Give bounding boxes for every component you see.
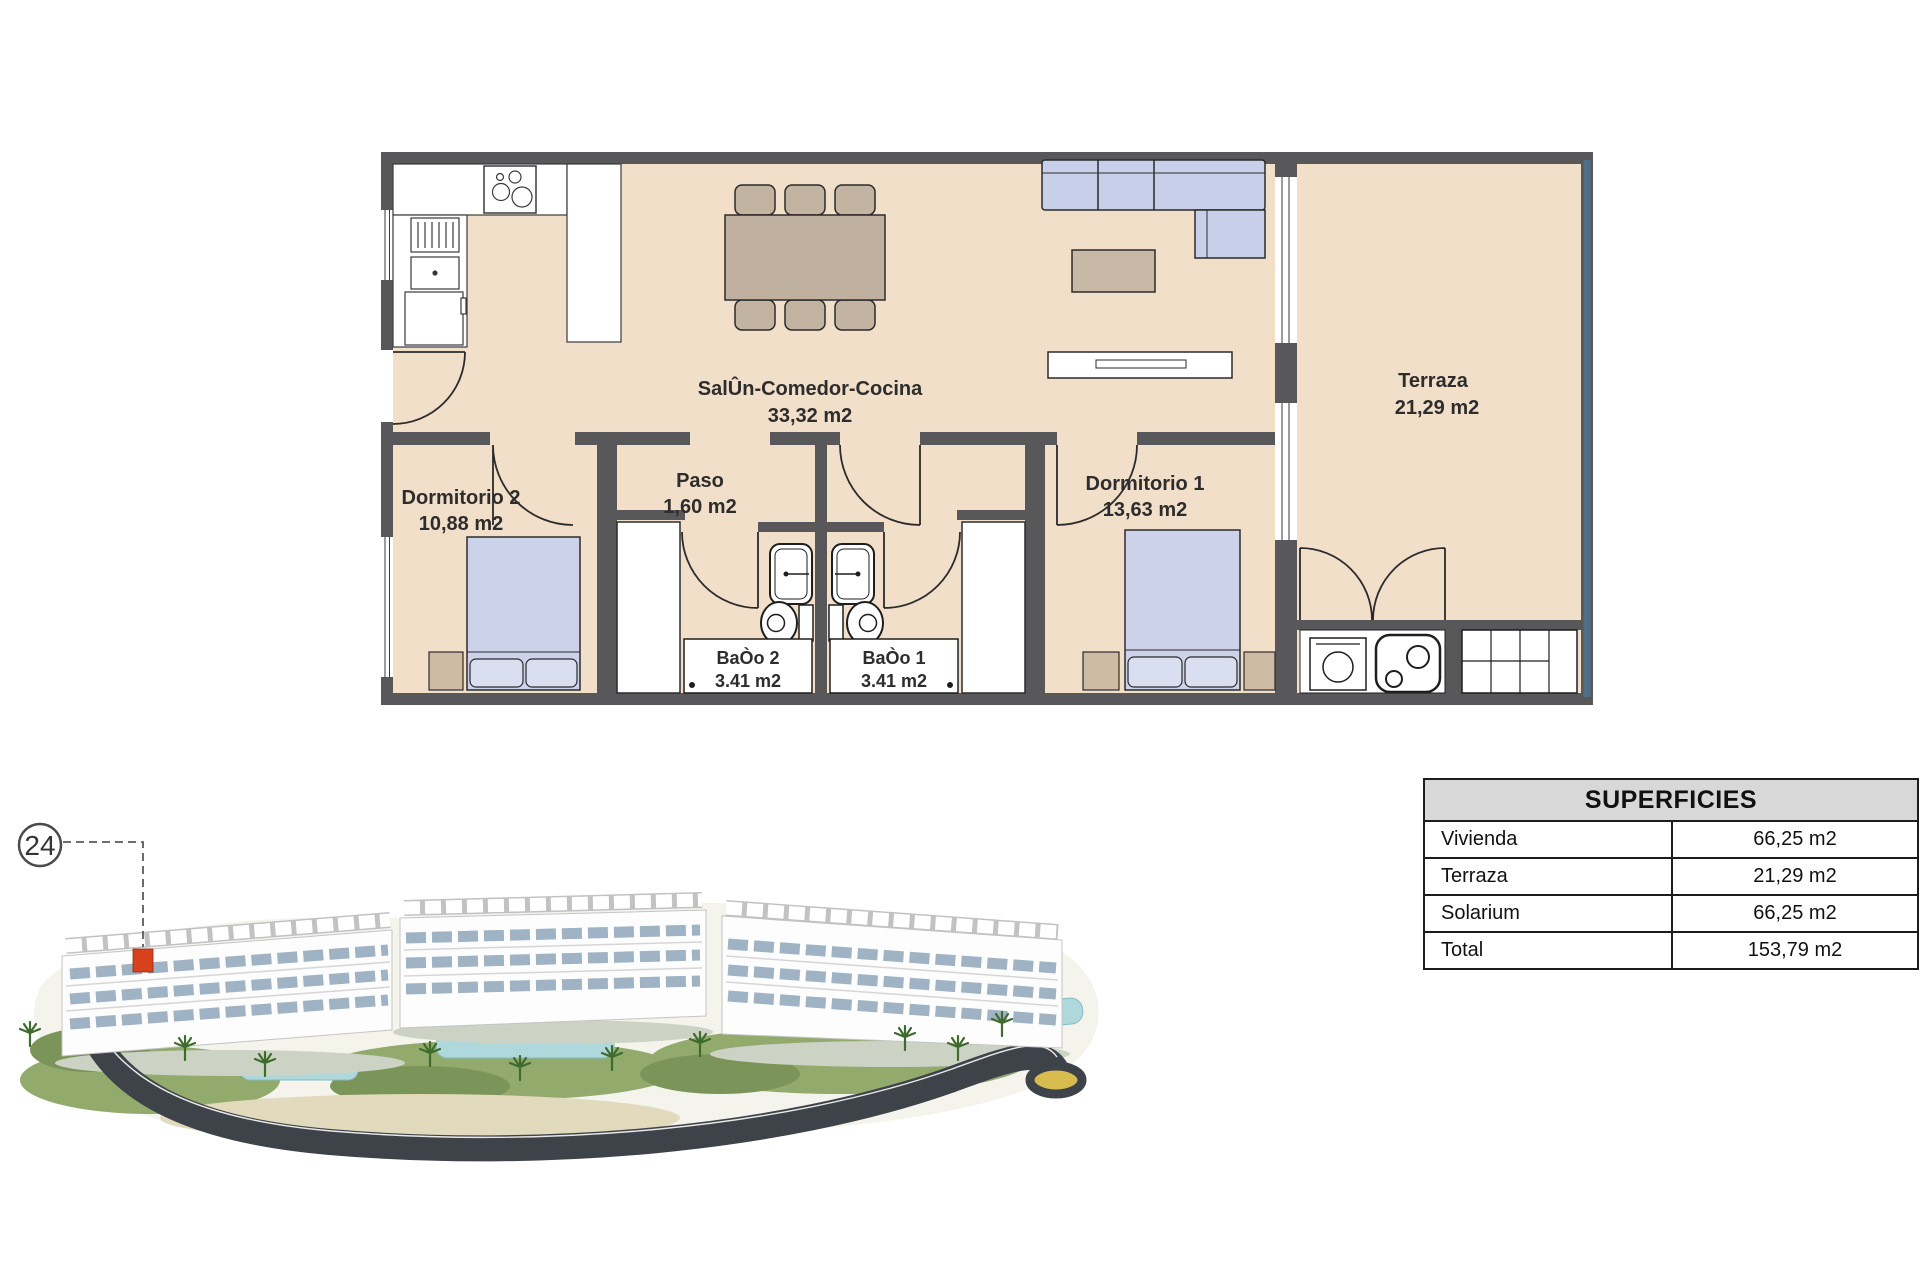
unit-badge-number: 24 bbox=[24, 830, 55, 861]
label-bano2-name: BaÒo 2 bbox=[716, 647, 779, 668]
label-salon-area: 33,32 m2 bbox=[768, 405, 853, 427]
label-dormitorio2-area: 10,88 m2 bbox=[419, 513, 504, 535]
coffee-table bbox=[1072, 250, 1155, 292]
row-label: Vivienda bbox=[1425, 822, 1673, 857]
superficies-table: SUPERFICIES Vivienda 66,25 m2 Terraza 21… bbox=[1423, 778, 1919, 970]
nightstand bbox=[1244, 652, 1275, 690]
floor-plan: SalÛn-Comedor-Cocina 33,32 m2 Paso 1,60 … bbox=[381, 152, 1593, 705]
table-row: Terraza 21,29 m2 bbox=[1425, 859, 1917, 896]
label-dormitorio1-area: 13,63 m2 bbox=[1103, 499, 1188, 521]
terrace-utility bbox=[1300, 630, 1577, 693]
building-render: 24 bbox=[0, 818, 1140, 1198]
row-label: Total bbox=[1425, 933, 1673, 968]
toilet bbox=[847, 602, 883, 644]
label-bano2-area: 3.41 m2 bbox=[715, 671, 781, 691]
row-label: Terraza bbox=[1425, 859, 1673, 894]
unit-marker bbox=[133, 949, 153, 972]
terrace-railing bbox=[1584, 160, 1591, 697]
nightstand bbox=[1083, 652, 1119, 690]
row-value: 153,79 m2 bbox=[1673, 933, 1917, 968]
table-row: Vivienda 66,25 m2 bbox=[1425, 822, 1917, 859]
label-paso-area: 1,60 m2 bbox=[663, 496, 736, 518]
unit-badge: 24 bbox=[19, 824, 143, 947]
dining-table bbox=[725, 215, 885, 300]
callout-line bbox=[63, 842, 143, 947]
roundabout bbox=[1030, 1066, 1082, 1094]
label-dormitorio1-name: Dormitorio 1 bbox=[1086, 473, 1205, 495]
label-paso-name: Paso bbox=[676, 470, 724, 492]
row-value: 66,25 m2 bbox=[1673, 822, 1917, 857]
row-value: 66,25 m2 bbox=[1673, 896, 1917, 931]
toilet bbox=[761, 602, 797, 644]
label-terraza-area: 21,29 m2 bbox=[1395, 397, 1480, 419]
row-value: 21,29 m2 bbox=[1673, 859, 1917, 894]
kitchen-cabinet bbox=[405, 292, 463, 345]
dining-set bbox=[725, 185, 885, 330]
table-row: Total 153,79 m2 bbox=[1425, 933, 1917, 968]
row-label: Solarium bbox=[1425, 896, 1673, 931]
label-dormitorio2-name: Dormitorio 2 bbox=[402, 487, 521, 509]
table-title: SUPERFICIES bbox=[1425, 780, 1917, 822]
label-salon-name: SalÛn-Comedor-Cocina bbox=[698, 376, 923, 400]
nightstand bbox=[429, 652, 463, 690]
building-block-right bbox=[722, 908, 1062, 1048]
tv-unit bbox=[1048, 352, 1232, 378]
label-bano1-area: 3.41 m2 bbox=[861, 671, 927, 691]
label-bano1-name: BaÒo 1 bbox=[862, 647, 925, 668]
page: SalÛn-Comedor-Cocina 33,32 m2 Paso 1,60 … bbox=[0, 0, 1920, 1280]
building-block-middle bbox=[400, 900, 706, 1028]
label-terraza-name: Terraza bbox=[1398, 370, 1469, 392]
table-row: Solarium 66,25 m2 bbox=[1425, 896, 1917, 933]
